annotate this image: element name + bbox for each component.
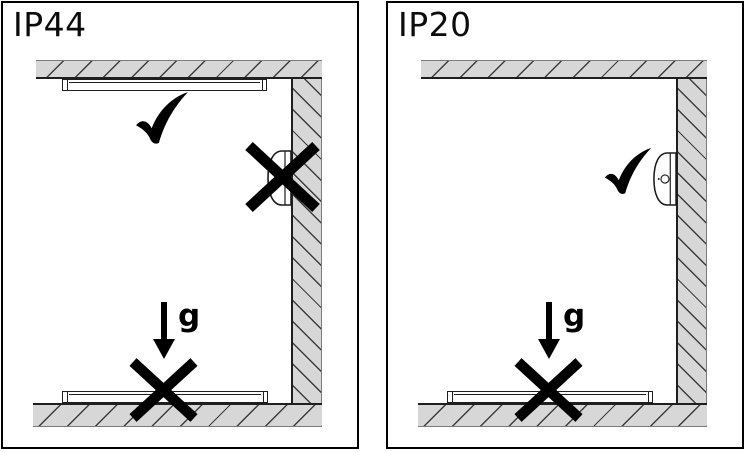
luminaire-lens-line — [69, 82, 260, 83]
ip44-panel: IP44 g — [1, 1, 359, 449]
luminaire-endcap — [63, 80, 68, 90]
gravity-arrow-icon — [537, 302, 561, 360]
cross-icon — [128, 357, 199, 423]
cross-icon — [243, 139, 322, 215]
ip-rating-label: IP44 — [13, 6, 87, 44]
luminaire-endcap — [262, 80, 267, 90]
ceiling-surface — [36, 60, 322, 79]
wall-surface — [676, 79, 707, 427]
wall-surface — [291, 79, 322, 427]
check-icon — [133, 90, 191, 146]
luminaire-endcap — [448, 392, 453, 402]
cable-entry-detail — [661, 175, 669, 183]
wall-luminaire — [652, 151, 677, 207]
luminaire-endcap — [263, 392, 268, 402]
ip20-panel: IP20 g — [386, 1, 744, 449]
ip-rating-label: IP20 — [398, 6, 472, 44]
fixing-dot-detail — [658, 178, 660, 180]
luminaire-endcap — [648, 392, 653, 402]
ceiling-surface — [421, 60, 707, 79]
cross-icon — [513, 357, 584, 423]
luminaire-endcap — [63, 392, 68, 402]
check-icon — [602, 146, 654, 196]
gravity-label: g — [563, 298, 585, 334]
gravity-label: g — [178, 298, 200, 334]
gravity-arrow-icon — [152, 302, 176, 360]
